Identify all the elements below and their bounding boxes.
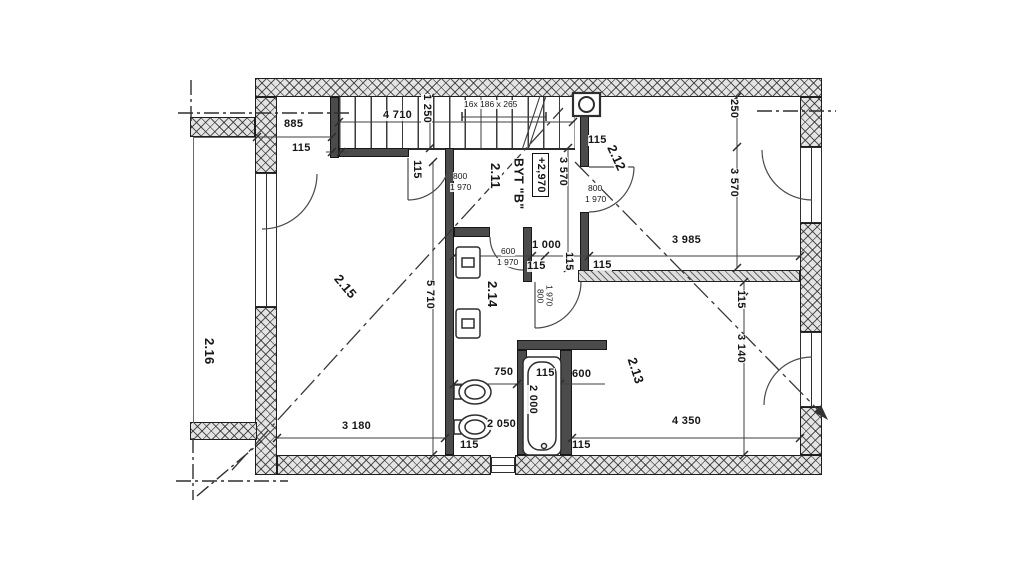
wall-below-stairs xyxy=(339,148,409,157)
room-label-216: 2.16 xyxy=(203,338,216,365)
terrace-edge-left xyxy=(193,137,194,423)
dim-3570-hall: 3 570 xyxy=(557,157,568,186)
dim-1000-corridor: 1 000 xyxy=(532,240,561,251)
dim-115-bottom-b: 115 xyxy=(572,440,591,451)
dim-250-right: 250 xyxy=(728,99,739,118)
wall-212-lower xyxy=(580,212,589,276)
dim-115-corridor-b: 115 xyxy=(563,252,574,271)
door-213-width: 800 xyxy=(536,289,545,303)
window-right-lower xyxy=(800,332,822,407)
wall-212-213-divider xyxy=(578,270,800,282)
dim-3140: 3 140 xyxy=(735,334,746,363)
door-hall-width: 800 xyxy=(453,172,467,181)
door-214-height: 1 970 xyxy=(497,258,518,267)
stairs-spec: 16x 186 x 265 xyxy=(464,100,517,109)
dim-5710: 5 710 xyxy=(424,280,435,309)
room-label-214: 2.14 xyxy=(486,281,499,308)
dim-1250-stair-width: 1 250 xyxy=(421,94,432,123)
dim-600-tub: 600 xyxy=(572,369,591,380)
wall-wc-tub-divider xyxy=(517,350,527,455)
dim-750-wc: 750 xyxy=(494,367,513,378)
door-212-width: 800 xyxy=(588,184,602,193)
exterior-wall-bottom-right xyxy=(515,455,822,475)
room-label-213: 2.13 xyxy=(626,356,647,385)
dim-2000-tub: 2 000 xyxy=(527,385,538,414)
toilet-1-tank xyxy=(454,385,461,399)
chimney-flue xyxy=(579,97,594,112)
exterior-wall-left-upper xyxy=(255,97,277,173)
wall-hall-pillar xyxy=(523,227,532,282)
window-bottom xyxy=(491,457,515,473)
wall-wc-top xyxy=(517,340,607,350)
roof-slope-diagonals xyxy=(232,108,824,470)
dim-2050: 2 050 xyxy=(487,419,516,430)
room-label-212: 2.12 xyxy=(605,143,628,173)
stair-side-wall xyxy=(330,97,339,158)
terrace-stub-wall-bottom xyxy=(190,422,257,440)
toilet-2-tank xyxy=(454,420,461,434)
dim-4350: 4 350 xyxy=(672,416,701,427)
elevation-marker: +2,970 xyxy=(532,153,549,197)
dim-3570-right: 3 570 xyxy=(728,168,739,197)
apartment-label: BYT "B" xyxy=(512,158,525,209)
dim-4710-stairs: 4 710 xyxy=(383,110,412,121)
dim-115-corridor-a: 115 xyxy=(527,261,546,272)
toilet-2-seat xyxy=(465,420,485,434)
room-label-211: 2.11 xyxy=(489,163,502,189)
window-right-upper xyxy=(800,147,822,223)
staircase-treads xyxy=(339,97,575,150)
sink-1 xyxy=(456,247,480,278)
door-214-width: 600 xyxy=(501,247,515,256)
toilet-1-seat xyxy=(465,385,485,399)
dim-115-right-lower: 115 xyxy=(735,290,746,309)
dim-115-corridor-c: 115 xyxy=(593,260,612,271)
dim-115-chimney: 115 xyxy=(588,135,607,146)
dim-115-bottom-a: 115 xyxy=(460,440,479,451)
wall-hall-left xyxy=(445,148,454,455)
dim-115-left-wall: 115 xyxy=(292,143,311,154)
floor-plan: 885 115 4 710 16x 186 x 265 1 250 115 80… xyxy=(0,0,1011,570)
terrace-stub-wall-top xyxy=(190,117,255,137)
terrace-edge-top xyxy=(193,137,255,138)
exterior-wall-right-top xyxy=(800,97,822,147)
exterior-wall-bottom-left xyxy=(277,455,491,475)
dim-3180: 3 180 xyxy=(342,421,371,432)
window-left xyxy=(255,173,277,307)
door-213-height: 1 970 xyxy=(545,285,554,306)
dim-885: 885 xyxy=(284,119,303,130)
sink-1-basin xyxy=(462,258,474,267)
exterior-wall-right-mid xyxy=(800,223,822,332)
exterior-wall-right-bottom xyxy=(800,407,822,455)
sink-2-basin xyxy=(462,319,474,328)
toilet-1-bowl xyxy=(459,380,491,404)
dim-3985: 3 985 xyxy=(672,235,701,246)
wall-tub-right xyxy=(560,350,572,455)
sink-2 xyxy=(456,309,480,338)
door-212-height: 1 970 xyxy=(585,195,606,204)
dim-115-wc: 115 xyxy=(536,368,555,379)
exterior-wall-left-lower xyxy=(255,307,277,475)
exterior-wall-top xyxy=(255,78,822,97)
door-hall-height: 1 970 xyxy=(450,183,471,192)
bathtub-drain xyxy=(542,444,547,449)
wall-bath-top xyxy=(454,227,490,237)
dim-115-hall-door: 115 xyxy=(411,160,422,179)
room-label-215: 2.15 xyxy=(332,272,359,301)
